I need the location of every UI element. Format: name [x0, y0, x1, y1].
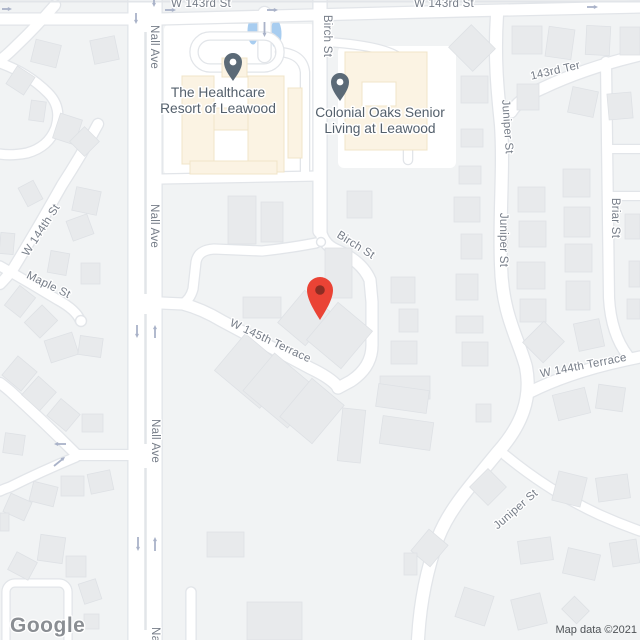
building	[72, 187, 101, 216]
building	[404, 553, 417, 575]
poi-label-line[interactable]: Resort of Leawood	[160, 101, 276, 116]
street-label: Birch St	[321, 15, 333, 58]
building	[247, 602, 302, 640]
building	[462, 342, 488, 366]
building	[456, 274, 478, 300]
building	[78, 335, 103, 357]
building	[461, 234, 482, 259]
poi-building	[190, 161, 277, 174]
building	[66, 556, 86, 577]
building	[518, 187, 545, 212]
building	[563, 169, 590, 197]
street-label: Nall Ave	[149, 627, 161, 640]
poi-pin-dot	[337, 79, 344, 86]
google-logo[interactable]: Google	[10, 614, 85, 637]
map-attribution: Map data ©2021	[556, 624, 638, 636]
building	[512, 26, 542, 54]
building	[595, 474, 630, 502]
street-label: W 143rd St	[171, 0, 232, 10]
building	[476, 404, 491, 422]
building	[399, 309, 418, 332]
street-label: Briar St	[609, 198, 621, 239]
building	[461, 76, 488, 103]
building	[517, 84, 539, 110]
building	[568, 87, 599, 118]
building	[61, 476, 84, 496]
building	[81, 263, 100, 284]
building	[518, 537, 554, 564]
building	[228, 196, 256, 244]
building	[519, 221, 546, 247]
street-label: Nall Ave	[149, 419, 161, 463]
street-label: W 143rd St	[414, 0, 475, 10]
building	[459, 166, 481, 184]
building	[29, 100, 47, 122]
map-marker-dot	[315, 285, 325, 295]
map-canvas[interactable]: W 143rd St W 143rd St Nall Ave Nall Ave …	[0, 0, 640, 640]
poi-label-line[interactable]: Living at Leawood	[324, 121, 435, 136]
building	[566, 281, 590, 310]
building	[607, 92, 633, 120]
building	[84, 614, 99, 629]
building	[517, 262, 545, 289]
poi-pin-dot	[230, 59, 237, 66]
building	[595, 384, 625, 412]
building	[0, 513, 9, 531]
poi-building	[288, 88, 302, 158]
road-segment	[161, 176, 318, 179]
street-label: Juniper St	[497, 213, 509, 268]
building	[454, 197, 480, 222]
building	[625, 214, 640, 239]
building	[620, 27, 640, 55]
building	[609, 539, 639, 567]
building	[90, 36, 119, 65]
building	[207, 532, 244, 557]
road-junction-dot	[317, 238, 326, 247]
building	[545, 26, 575, 59]
building	[391, 341, 417, 364]
poi-label-line[interactable]: Colonial Oaks Senior	[315, 105, 445, 120]
building	[629, 261, 640, 287]
building	[627, 299, 640, 319]
building	[585, 25, 610, 55]
street-label: Nall Ave	[148, 25, 160, 69]
street-label: Nall Ave	[148, 204, 160, 248]
building	[3, 433, 26, 456]
building	[520, 299, 546, 322]
building	[47, 251, 70, 276]
building	[243, 297, 281, 318]
building	[461, 129, 483, 147]
building	[87, 470, 114, 494]
cul-de-sac-bulb	[76, 316, 87, 327]
courtyard	[362, 82, 396, 106]
building	[456, 316, 483, 333]
building	[573, 319, 604, 352]
building	[0, 232, 15, 254]
building	[347, 191, 372, 218]
building	[261, 202, 283, 242]
poi-label-line[interactable]: The Healthcare	[171, 85, 266, 100]
building	[82, 414, 103, 432]
building	[391, 277, 415, 303]
building	[37, 534, 65, 563]
building	[564, 207, 590, 237]
building	[565, 244, 592, 272]
map-embed[interactable]: W 143rd St W 143rd St Nall Ave Nall Ave …	[0, 0, 640, 640]
